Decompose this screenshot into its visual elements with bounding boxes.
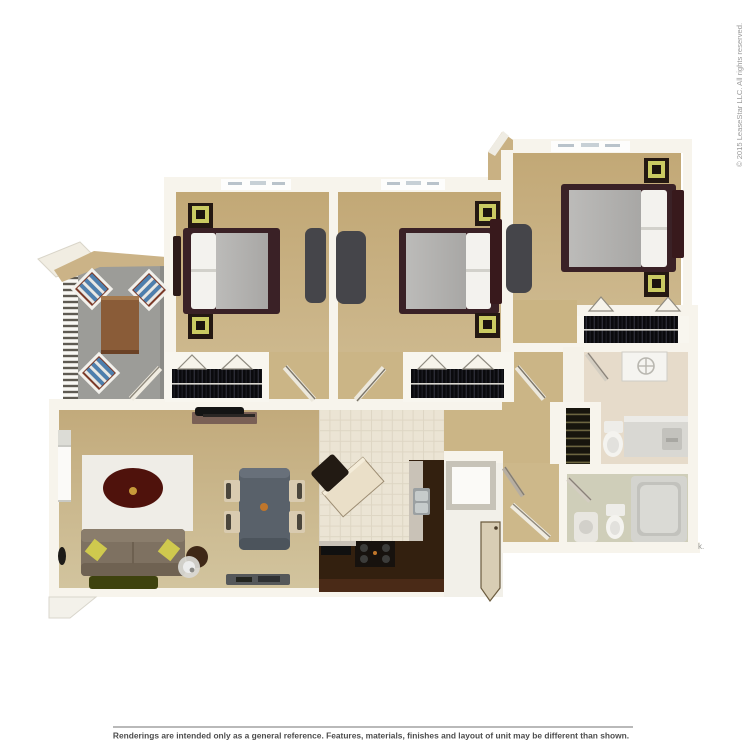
svg-text:Renderings are intended only a: Renderings are intended only as a genera… — [113, 731, 629, 741]
svg-text:k.: k. — [698, 542, 704, 551]
svg-text:© 2015 LeaseStar LLC. All righ: © 2015 LeaseStar LLC. All rights reserve… — [735, 23, 744, 167]
